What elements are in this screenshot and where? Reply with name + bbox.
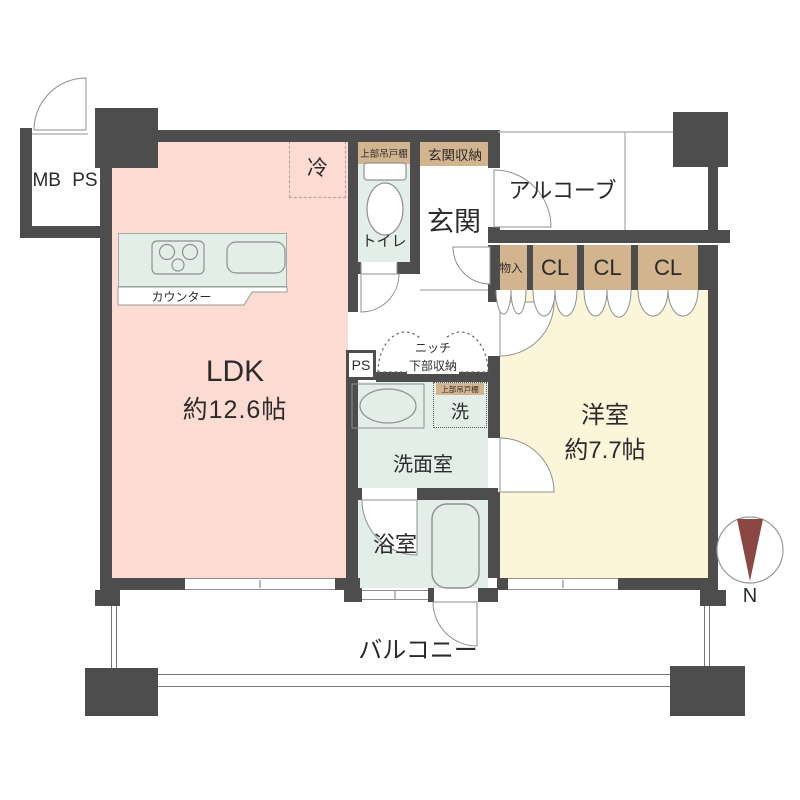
wall-closet-top <box>488 230 730 243</box>
balcony-rail-right <box>704 606 710 666</box>
compass-n-label: N <box>735 583 765 609</box>
alcove-label: アルコーブ <box>495 172 630 206</box>
kitchen-counter <box>118 233 287 287</box>
niche-label-line1: ニッチ <box>400 340 466 355</box>
counter-label: カウンター <box>124 289 239 304</box>
wall-washbath-right <box>417 488 498 500</box>
wall-closet-div-1 <box>577 245 584 290</box>
wall-western-left-c <box>488 492 500 578</box>
mbps-door-arc <box>34 78 86 130</box>
wall-toilet-right <box>410 130 420 274</box>
window-bath <box>362 590 428 600</box>
toilet-door-arc <box>361 274 399 312</box>
window-ldk <box>185 578 335 590</box>
entrance-label: 玄関 <box>420 198 488 240</box>
wall-western-left-b <box>488 356 500 438</box>
floor-plan: MB PS LDK 約12.6帖 カウンター 冷 上部吊戸棚 トイレ 玄関収納 … <box>0 0 800 800</box>
pillar-top-left <box>95 108 158 168</box>
compass-needle <box>737 519 763 581</box>
balcony-rail-left <box>111 606 117 668</box>
ps-label: PS <box>346 352 376 378</box>
wall-ldk-left <box>100 165 112 590</box>
wall-western-left-a <box>488 290 500 302</box>
window-western <box>508 578 618 590</box>
pillar-balcony-right <box>670 666 745 716</box>
wall-right-upper <box>708 167 718 233</box>
western-size-label: 約7.7帖 <box>505 432 705 462</box>
pillar-top-right <box>673 112 728 167</box>
wall-ldk-bottom-left <box>100 578 185 590</box>
wall-center-lower <box>346 380 358 590</box>
pillar-balcony-left <box>85 668 158 716</box>
wall-washbath-left <box>346 488 362 500</box>
wall-western-bottom-right <box>618 578 718 590</box>
balcony-label: バルコニー <box>348 632 488 662</box>
wall-western-bottom-left <box>497 578 508 590</box>
storage-label: 物入 <box>503 249 519 289</box>
wall-stub-bottom-left <box>95 590 120 606</box>
washroom-label: 洗面室 <box>368 448 478 476</box>
closet-label-1: CL <box>533 252 577 284</box>
niche-label-line1-text: ニッチ <box>413 339 453 356</box>
balcony-rail-bottom <box>158 674 670 687</box>
wall-right-main <box>708 245 718 590</box>
wall-mbps-left <box>20 128 32 238</box>
bath-label: 浴室 <box>360 528 430 558</box>
entrance-storage-label: 玄関収納 <box>420 145 490 163</box>
fridge-label: 冷 <box>289 140 346 194</box>
washer-label: 洗 <box>439 398 481 424</box>
wall-closet-div-2 <box>631 245 638 290</box>
toilet-label: トイレ <box>358 228 410 252</box>
niche-label-line2-text: 下部収納 <box>407 357 459 374</box>
wall-closet-right-fill <box>698 245 708 290</box>
wall-toilet-bottom-left <box>348 262 361 274</box>
wall-bath-bottom-c <box>478 588 498 602</box>
niche-label-line2: 下部収納 <box>394 358 472 373</box>
wall-bath-bottom-a <box>344 588 362 602</box>
wall-stub-bottom-right <box>700 590 726 606</box>
wall-mbps-bottom <box>20 226 112 238</box>
wall-center-upper <box>348 130 358 312</box>
wall-bath-bottom-b <box>428 588 434 602</box>
ldk-size-label: 約12.6帖 <box>140 392 330 424</box>
mbps-label: MB PS <box>32 168 98 194</box>
washer-upper-cabinet-label: 上部吊戸棚 <box>436 383 484 395</box>
toilet-upper-cabinet-label: 上部吊戸棚 <box>358 144 410 162</box>
compass-circle <box>717 517 783 583</box>
ldk-name-label: LDK <box>140 354 330 390</box>
western-name-label: 洋室 <box>505 396 705 428</box>
closet-label-2: CL <box>584 252 631 284</box>
closet-label-3: CL <box>638 252 698 284</box>
